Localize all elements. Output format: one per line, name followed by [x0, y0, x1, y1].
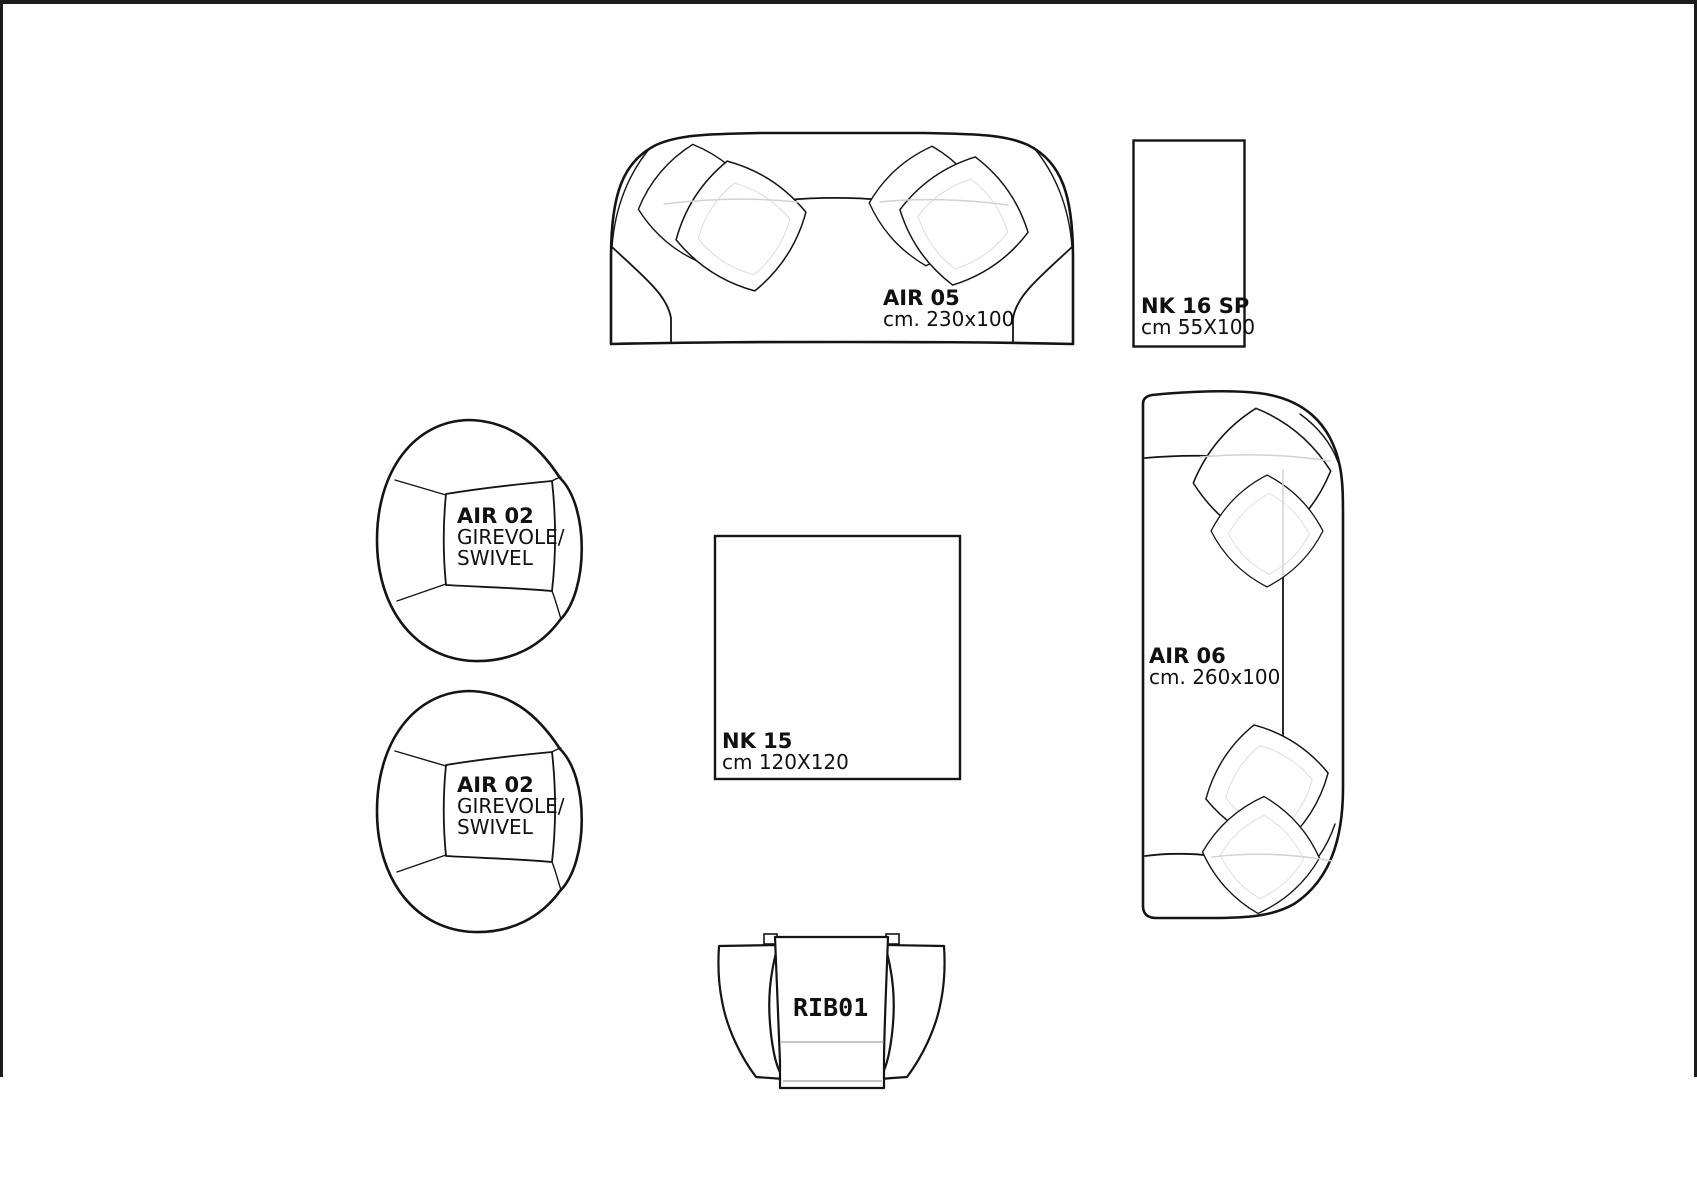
item-name: NK 16 SP — [1141, 295, 1255, 317]
label-nk16sp: NK 16 SP cm 55X100 — [1141, 295, 1255, 338]
item-name: NK 15 — [722, 730, 849, 752]
item-name: AIR 02 — [457, 774, 565, 796]
item-type: SWIVEL — [457, 815, 533, 839]
item-dims: cm 120X120 — [722, 750, 849, 774]
label-rib01: RIB01 — [793, 993, 868, 1022]
item-dims: cm 55X100 — [1141, 315, 1255, 339]
item-type: SWIVEL — [457, 546, 533, 570]
label-nk15: NK 15 cm 120X120 — [722, 730, 849, 773]
item-dims: cm. 230x100 — [883, 307, 1014, 331]
item-name: RIB01 — [793, 993, 868, 1022]
item-dims: cm. 260x100 — [1149, 665, 1280, 689]
rib01-left-armrest — [718, 945, 784, 1079]
label-air05: AIR 05 cm. 230x100 — [883, 287, 1014, 330]
item-name: AIR 02 — [457, 505, 565, 527]
floorplan-canvas: AIR 05 cm. 230x100 NK 16 SP cm 55X100 AI… — [0, 0, 1697, 1200]
label-air02-top: AIR 02 GIREVOLE/ SWIVEL — [457, 505, 565, 569]
label-air02-bottom: AIR 02 GIREVOLE/ SWIVEL — [457, 774, 565, 838]
item-name: AIR 05 — [883, 287, 1014, 309]
label-air06: AIR 06 cm. 260x100 — [1149, 645, 1280, 688]
rib01-right-armrest — [879, 945, 945, 1079]
item-name: AIR 06 — [1149, 645, 1280, 667]
